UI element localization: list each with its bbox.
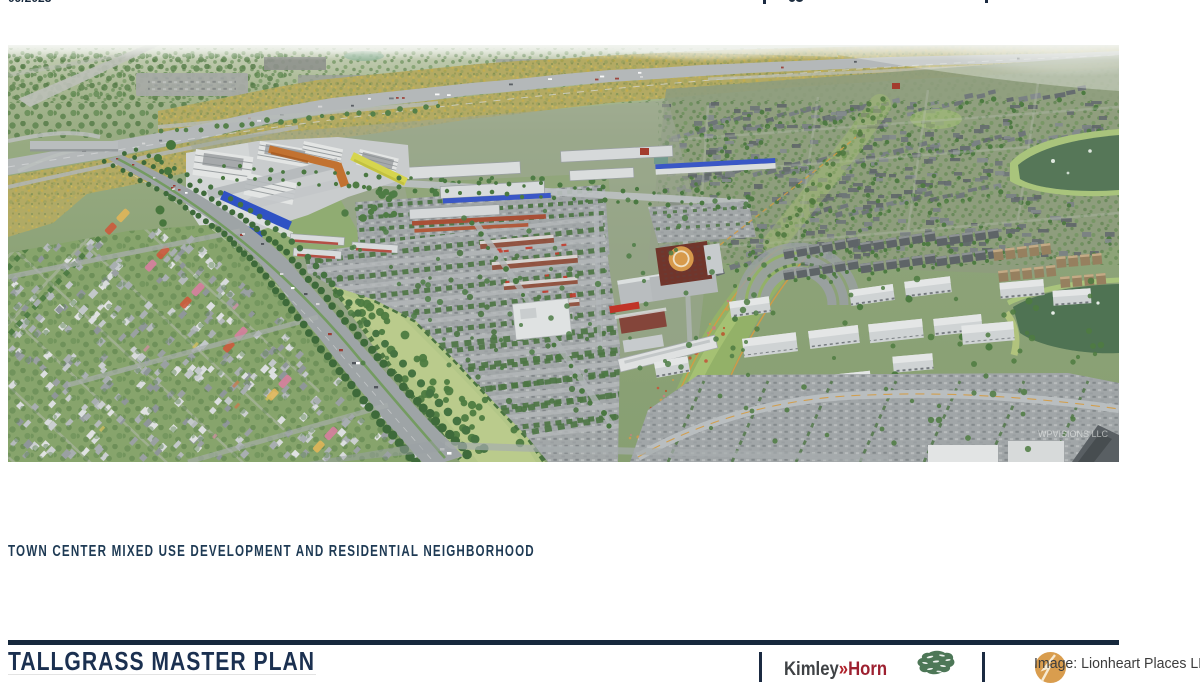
svg-text:WPVISIONS LLC: WPVISIONS LLC (1038, 429, 1109, 439)
